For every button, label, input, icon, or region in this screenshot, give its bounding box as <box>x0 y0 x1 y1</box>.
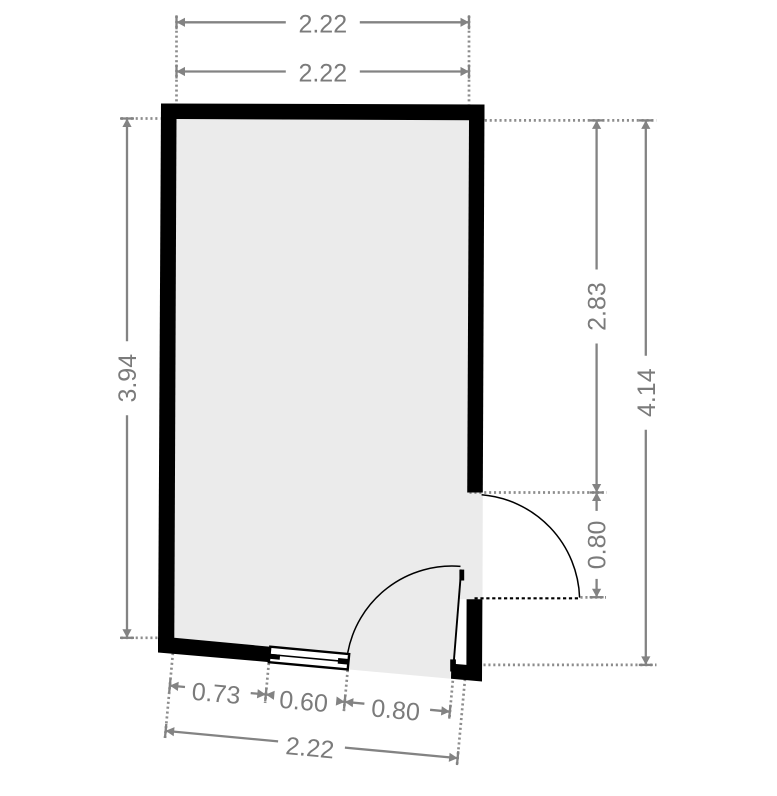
svg-text:0.80: 0.80 <box>370 694 421 726</box>
svg-text:0.60: 0.60 <box>278 686 329 718</box>
svg-text:3.94: 3.94 <box>114 354 142 403</box>
svg-text:4.14: 4.14 <box>633 368 661 417</box>
svg-text:2.22: 2.22 <box>284 732 335 764</box>
svg-text:0.80: 0.80 <box>584 521 612 570</box>
svg-text:2.22: 2.22 <box>298 10 347 38</box>
svg-text:0.73: 0.73 <box>191 678 242 710</box>
svg-text:2.83: 2.83 <box>584 282 612 331</box>
svg-text:2.22: 2.22 <box>298 60 347 88</box>
